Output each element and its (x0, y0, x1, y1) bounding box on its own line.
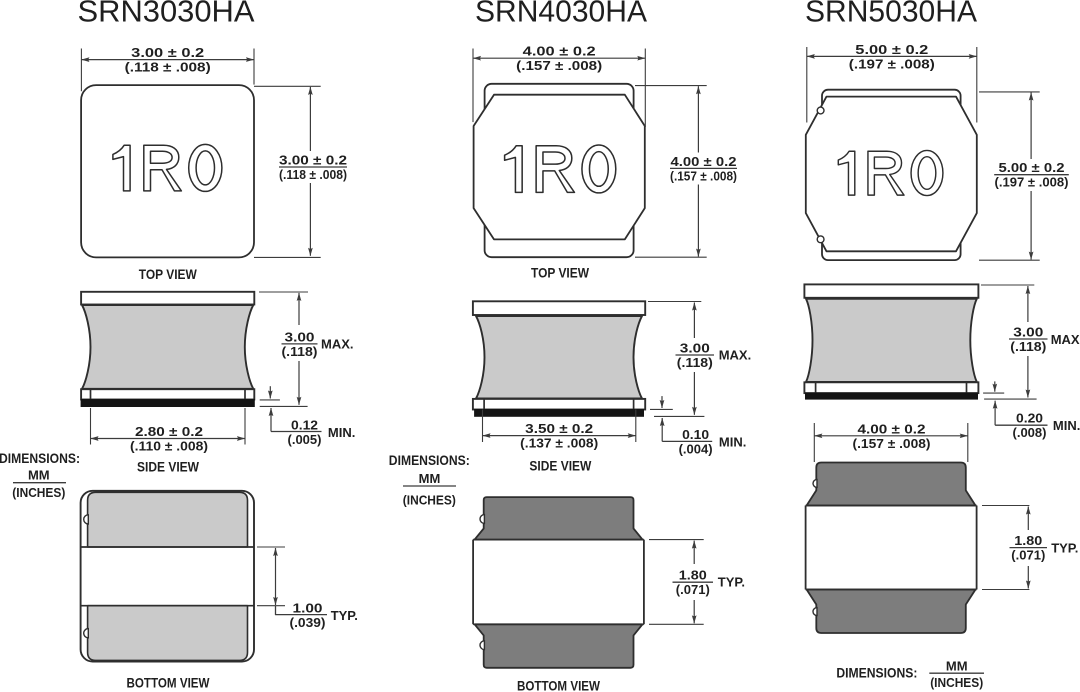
svg-text:(.157 ± .008): (.157 ± .008) (670, 168, 737, 183)
svg-text:BOTTOM VIEW: BOTTOM VIEW (517, 678, 601, 692)
svg-text:MM: MM (419, 471, 441, 486)
svg-text:TOP VIEW: TOP VIEW (139, 266, 198, 282)
svg-text:0.20: 0.20 (1016, 411, 1043, 426)
svg-text:SRN4030HA: SRN4030HA (475, 0, 648, 28)
svg-text:SIDE VIEW: SIDE VIEW (529, 458, 592, 474)
svg-text:MAX.: MAX. (321, 336, 354, 351)
svg-text:MIN.: MIN. (1053, 418, 1080, 433)
svg-text:DIMENSIONS:: DIMENSIONS: (836, 666, 917, 681)
svg-text:(.004): (.004) (679, 441, 713, 456)
svg-text:4.00 ± 0.2: 4.00 ± 0.2 (858, 421, 926, 436)
svg-text:MIN.: MIN. (328, 425, 355, 440)
svg-text:3.00: 3.00 (285, 329, 315, 344)
svg-text:TYP.: TYP. (331, 608, 358, 623)
svg-text:(INCHES): (INCHES) (930, 675, 983, 690)
svg-text:MM: MM (946, 659, 968, 674)
svg-text:BOTTOM VIEW: BOTTOM VIEW (127, 675, 211, 691)
svg-text:2.80 ± 0.2: 2.80 ± 0.2 (135, 424, 203, 439)
svg-text:1.80: 1.80 (679, 568, 707, 583)
svg-text:TYP.: TYP. (718, 575, 745, 590)
svg-text:MAX.: MAX. (719, 348, 752, 363)
svg-text:(.157 ± .008): (.157 ± .008) (516, 58, 602, 73)
svg-text:MIN.: MIN. (719, 434, 746, 449)
svg-text:(INCHES): (INCHES) (12, 485, 65, 500)
svg-text:DIMENSIONS:: DIMENSIONS: (0, 451, 80, 466)
svg-text:TOP VIEW: TOP VIEW (531, 265, 590, 281)
svg-text:(.008): (.008) (1013, 425, 1047, 440)
svg-text:3.50 ± 0.2: 3.50 ± 0.2 (525, 421, 593, 436)
svg-text:MM: MM (28, 468, 50, 483)
svg-text:(.071): (.071) (676, 582, 710, 597)
svg-text:(.005): (.005) (288, 432, 322, 447)
svg-text:0.10: 0.10 (682, 427, 709, 442)
svg-text:(.118 ± .008): (.118 ± .008) (279, 167, 347, 182)
svg-text:(.118): (.118) (677, 355, 713, 370)
svg-text:3.00: 3.00 (680, 341, 710, 356)
svg-text:4.00 ± 0.2: 4.00 ± 0.2 (671, 154, 737, 169)
svg-text:SRN5030HA: SRN5030HA (805, 0, 978, 28)
svg-text:DIMENSIONS:: DIMENSIONS: (389, 453, 470, 468)
svg-text:(.071): (.071) (1011, 548, 1045, 563)
svg-text:1.00: 1.00 (293, 600, 323, 615)
svg-text:0.12: 0.12 (291, 417, 318, 432)
svg-text:TYP.: TYP. (1051, 541, 1078, 556)
svg-text:5.00 ± 0.2: 5.00 ± 0.2 (999, 160, 1065, 175)
svg-text:(.197 ± .008): (.197 ± .008) (849, 56, 935, 71)
svg-text:(.118): (.118) (282, 344, 318, 359)
svg-text:3.00 ± 0.2: 3.00 ± 0.2 (131, 45, 204, 60)
svg-text:(.197 ± .008): (.197 ± .008) (995, 175, 1069, 190)
svg-text:MAX.: MAX. (1051, 332, 1080, 347)
svg-text:(.157 ± .008): (.157 ± .008) (853, 436, 931, 451)
svg-text:(.118 ± .008): (.118 ± .008) (125, 60, 211, 75)
svg-text:(.137 ± .008): (.137 ± .008) (520, 436, 598, 451)
svg-text:5.00 ± 0.2: 5.00 ± 0.2 (855, 42, 928, 57)
svg-text:(.039): (.039) (290, 615, 326, 630)
svg-text:(.110 ± .008): (.110 ± .008) (130, 439, 208, 454)
svg-text:3.00: 3.00 (1013, 325, 1043, 340)
svg-text:SRN3030HA: SRN3030HA (78, 0, 256, 28)
svg-text:4.00 ± 0.2: 4.00 ± 0.2 (523, 44, 596, 59)
svg-text:(.118): (.118) (1010, 339, 1046, 354)
svg-text:SIDE VIEW: SIDE VIEW (137, 459, 200, 475)
svg-text:3.00 ± 0.2: 3.00 ± 0.2 (279, 152, 347, 167)
svg-text:(INCHES): (INCHES) (403, 493, 456, 508)
svg-text:1.80: 1.80 (1014, 533, 1042, 548)
